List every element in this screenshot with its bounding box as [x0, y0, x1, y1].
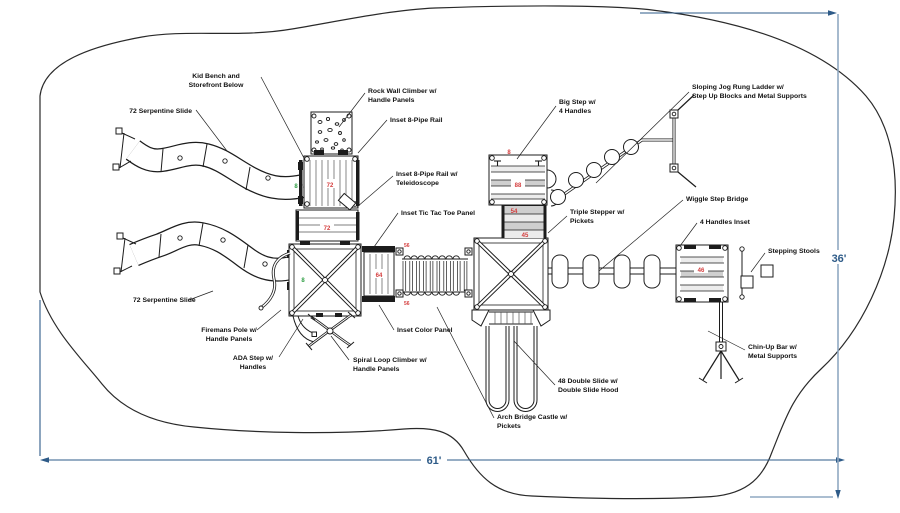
label-ada-1: ADA Step w/ [233, 355, 273, 362]
label-chin-up-2: Metal Supports [748, 353, 797, 360]
height-dimension-label: 36' [832, 253, 847, 265]
label-big-step-2: 4 Handles [559, 108, 591, 115]
bridge-number-bottom: 56 [404, 301, 410, 307]
label-pipe-rail-top: Inset 8-Pipe Rail [390, 117, 443, 124]
label-tic-tac-toe: Inset Tic Tac Toe Panel [401, 210, 475, 217]
x-deck-left: 8 [289, 241, 361, 316]
double-slide [486, 326, 537, 412]
ramp-deck: 72 [296, 210, 360, 241]
label-triple-stepper-1: Triple Stepper w/ [570, 209, 624, 216]
deck-number-tower-mid: 72 [324, 226, 331, 232]
plan-canvas: 61' 36' [0, 0, 900, 513]
small-deck: 64 [362, 246, 395, 302]
label-arch-bridge-1: Arch Bridge Castle w/ [497, 414, 567, 421]
label-serpentine-bottom: 72 Serpentine Slide [133, 297, 196, 304]
stepping-stools [741, 265, 773, 288]
color-panel [362, 296, 395, 302]
slide-hood [472, 310, 550, 326]
pipe-rail-bar-mid [356, 212, 360, 240]
arch-bridge: 56 56 [396, 243, 472, 307]
big-step-mid-number: 88 [515, 183, 522, 189]
label-double-slide-1: 48 Double Slide w/ [558, 378, 618, 385]
chin-up-bar [699, 302, 743, 383]
label-serpentine-top: 72 Serpentine Slide [129, 108, 192, 115]
label-firemans-2: Handle Panels [206, 336, 253, 343]
stepper-upper-number: 54 [511, 209, 518, 215]
stepper-lower-number: 45 [522, 233, 529, 239]
label-rock-wall-2: Handle Panels [368, 97, 415, 104]
label-jog-ladder-2: Step Up Blocks and Metal Supports [692, 93, 807, 100]
dimension-width: 61' [40, 300, 845, 467]
label-firemans-1: Firemans Pole w/ [201, 327, 257, 334]
bridge-number-top: 56 [404, 243, 410, 249]
kid-bench-bar [299, 160, 303, 206]
label-ada-2: Handles [240, 364, 267, 371]
label-chin-up-1: Chin-Up Bar w/ [748, 344, 797, 351]
serpentine-slide-top [113, 128, 303, 204]
label-pipe-rail-tele-1: Inset 8-Pipe Rail w/ [396, 171, 458, 178]
pipe-rail-bar-top [356, 160, 360, 206]
spiral-loop-climber [306, 312, 355, 350]
label-big-step-1: Big Step w/ [559, 99, 596, 106]
label-jog-ladder-1: Sloping Jog Rung Ladder w/ [692, 84, 784, 91]
label-arch-bridge-2: Pickets [497, 423, 521, 430]
serpentine-slide-bottom [114, 223, 292, 290]
label-pipe-rail-tele-2: Teleidoscope [396, 180, 439, 187]
label-wiggle-bridge: Wiggle Step Bridge [686, 196, 748, 203]
label-kid-bench-2: Storefront Below [189, 82, 244, 89]
triple-stepper-steps: 54 45 [502, 206, 546, 239]
handles-inset-deck: 46 [676, 245, 744, 302]
label-handles-inset: 4 Handles Inset [700, 219, 751, 226]
label-spiral-1: Spiral Loop Climber w/ [353, 357, 427, 364]
label-stepping-stools: Stepping Stools [768, 248, 820, 255]
playground-plan: 61' 36' [0, 0, 900, 513]
label-rock-wall-1: Rock Wall Climber w/ [368, 88, 437, 95]
label-triple-stepper-2: Pickets [570, 218, 594, 225]
deck-number-tower-top: 72 [327, 183, 334, 189]
deck-number-small: 64 [376, 273, 383, 279]
right-deck-number: 46 [698, 268, 705, 274]
tic-tac-toe-panel [362, 246, 395, 252]
width-dimension-label: 61' [427, 455, 442, 467]
label-kid-bench-1: Kid Bench and [192, 73, 240, 80]
label-spiral-2: Handle Panels [353, 366, 400, 373]
label-double-slide-2: Double Slide Hood [558, 387, 618, 394]
big-step-deck: 8 88 [489, 150, 547, 205]
x-deck-right [474, 238, 548, 310]
label-color-panel: Inset Color Panel [397, 327, 453, 334]
